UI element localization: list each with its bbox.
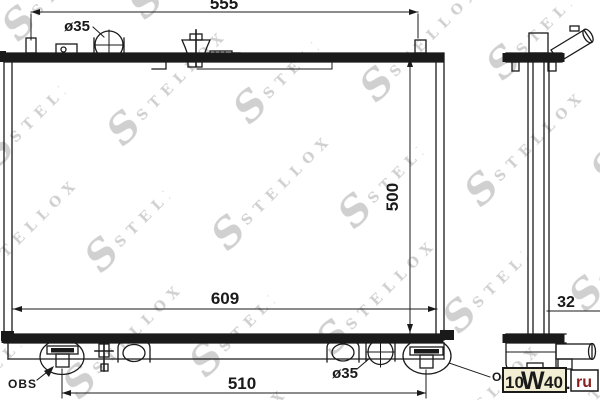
logo-dot: . bbox=[566, 376, 570, 393]
logo-text-w: W bbox=[521, 367, 545, 395]
logo-tld-text: ru bbox=[576, 374, 592, 391]
dim-height-label: 500 bbox=[383, 183, 402, 211]
dia-bottom-port-label: ø35 bbox=[332, 365, 358, 382]
dim-bottom-width-label: 609 bbox=[211, 289, 239, 308]
mount-bar-left bbox=[51, 348, 74, 353]
logo-text-40: 40 bbox=[544, 373, 563, 392]
right-foot bbox=[440, 330, 454, 340]
radiator-technical-drawing: S STELLOX S STELLOX bbox=[0, 0, 600, 400]
obs-left-label: OBS bbox=[8, 377, 37, 391]
dim-mount-span-label: 510 bbox=[228, 374, 256, 393]
dim-thickness-label: 32 bbox=[557, 294, 575, 311]
brand-logo: 10 W 40 . ru bbox=[503, 367, 598, 395]
top-left-end bbox=[0, 51, 6, 62]
mount-bar-right bbox=[414, 349, 439, 354]
left-foot bbox=[1, 331, 14, 341]
dim-top-width-label: 555 bbox=[210, 0, 238, 13]
dia-top-port-label: ø35 bbox=[64, 18, 90, 35]
